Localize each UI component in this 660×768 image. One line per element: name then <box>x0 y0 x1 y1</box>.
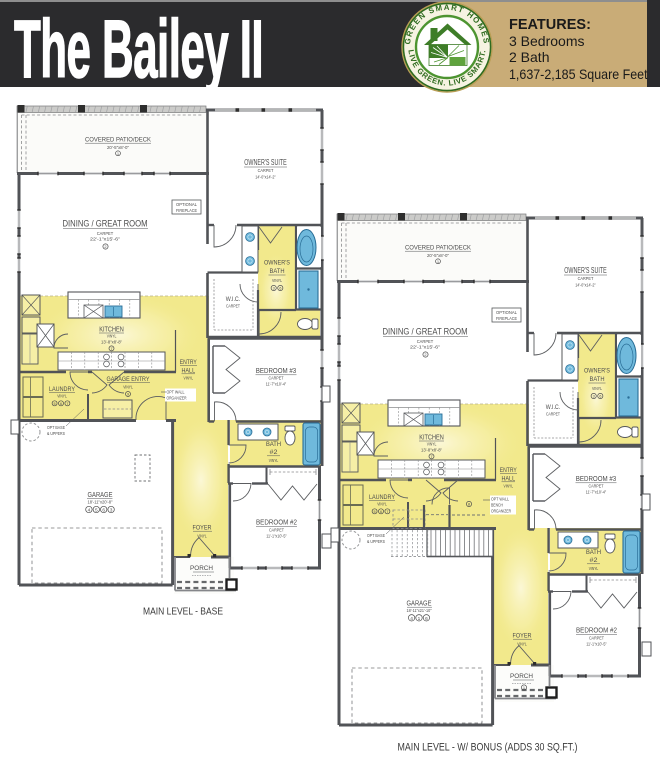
svg-text:7: 7 <box>430 455 432 459</box>
svg-text:OWNER'S: OWNER'S <box>584 368 610 375</box>
svg-text:5: 5 <box>95 508 98 514</box>
svg-text:BATH: BATH <box>590 376 605 383</box>
svg-text:BEDROOM #3: BEDROOM #3 <box>256 366 297 375</box>
svg-text:BEDROOM #2: BEDROOM #2 <box>256 518 297 527</box>
svg-text:1: 1 <box>117 152 119 156</box>
svg-text:6: 6 <box>60 402 62 406</box>
svg-text:CARPET: CARPET <box>417 339 434 344</box>
svg-text:8: 8 <box>468 502 470 507</box>
svg-text:& UPPERS: & UPPERS <box>367 539 385 544</box>
svg-text:PORCH: PORCH <box>510 673 533 680</box>
svg-text:KITCHEN: KITCHEN <box>419 434 444 441</box>
svg-text:BATH: BATH <box>266 442 281 448</box>
svg-text:ORGANIZER: ORGANIZER <box>491 509 511 514</box>
svg-text:6: 6 <box>102 508 105 514</box>
svg-text:CARPET: CARPET <box>269 527 284 532</box>
svg-text:OPTIONAL: OPTIONAL <box>176 202 198 207</box>
svg-text:7: 7 <box>110 347 112 351</box>
svg-text:ENTRY: ENTRY <box>500 467 517 474</box>
svg-text:20'-5"x8'-0": 20'-5"x8'-0" <box>427 253 449 258</box>
svg-text:FOYER: FOYER <box>513 633 532 640</box>
svg-text:GARAGE: GARAGE <box>88 490 113 499</box>
svg-text:VINYL: VINYL <box>197 534 207 539</box>
svg-text:BEDROOM #3: BEDROOM #3 <box>576 474 617 483</box>
svg-text:5: 5 <box>374 510 376 514</box>
svg-text:OPTIONAL: OPTIONAL <box>496 310 518 315</box>
svg-text:OWNER'S SUITE: OWNER'S SUITE <box>244 158 287 167</box>
svg-text:MAIN LEVEL - W/ BONUS (ADDS 30: MAIN LEVEL - W/ BONUS (ADDS 30 SQ.FT.) <box>398 742 578 754</box>
svg-text:BATH: BATH <box>270 268 285 275</box>
svg-text:13'-8"x8'-8": 13'-8"x8'-8" <box>421 448 442 453</box>
svg-text:COVERED PATIO/DECK: COVERED PATIO/DECK <box>405 245 471 252</box>
svg-text:7: 7 <box>66 402 68 406</box>
svg-text:VINYL: VINYL <box>184 376 194 381</box>
svg-text:VINYL: VINYL <box>589 566 599 571</box>
svg-text:VINYL: VINYL <box>517 642 527 647</box>
svg-text:VINYL: VINYL <box>592 386 603 391</box>
svg-text:11'-1"x10'-5": 11'-1"x10'-5" <box>586 641 607 646</box>
svg-text:18'-11"x21'-10": 18'-11"x21'-10" <box>407 608 432 613</box>
svg-text:OWNER'S SUITE: OWNER'S SUITE <box>564 266 607 275</box>
svg-text:2: 2 <box>104 244 106 249</box>
svg-text:6: 6 <box>279 286 281 291</box>
svg-text:VINYL: VINYL <box>57 394 67 399</box>
svg-text:9: 9 <box>127 393 129 397</box>
svg-text:11'-7"x10'-4": 11'-7"x10'-4" <box>586 489 607 494</box>
svg-text:CARPET: CARPET <box>546 412 560 417</box>
svg-text:HALL: HALL <box>181 367 195 374</box>
svg-text:ENTRY: ENTRY <box>180 359 197 366</box>
svg-text:CARPET: CARPET <box>258 168 274 173</box>
svg-text:14'-0"x14'-2": 14'-0"x14'-2" <box>575 283 596 288</box>
svg-text:GARAGE ENTRY: GARAGE ENTRY <box>107 376 151 383</box>
svg-text:4: 4 <box>410 616 413 622</box>
svg-text:1: 1 <box>523 685 525 690</box>
svg-text:22'-1"x15'-6": 22'-1"x15'-6" <box>410 345 440 350</box>
svg-text:ORGANIZER: ORGANIZER <box>167 395 187 400</box>
svg-text:CARPET: CARPET <box>269 375 284 380</box>
svg-text:CARPET: CARPET <box>226 304 240 309</box>
svg-text:#2: #2 <box>270 450 279 456</box>
svg-text:22'-1"x15'-6": 22'-1"x15'-6" <box>90 237 120 242</box>
svg-text:OPT BASE: OPT BASE <box>47 425 65 430</box>
svg-text:CARPET: CARPET <box>589 483 604 488</box>
svg-text:HALL: HALL <box>501 475 515 482</box>
svg-text:VINYL: VINYL <box>269 458 279 463</box>
svg-text:5: 5 <box>54 402 56 406</box>
svg-text:11'-7"x10'-4": 11'-7"x10'-4" <box>266 381 287 386</box>
svg-text:2: 2 <box>424 352 426 357</box>
svg-text:VINYL: VINYL <box>123 384 133 389</box>
svg-text:VINYL: VINYL <box>504 484 514 489</box>
svg-text:20'-5"x8'-0": 20'-5"x8'-0" <box>107 145 129 150</box>
svg-text:18'-11"x20'-8": 18'-11"x20'-8" <box>88 500 113 505</box>
svg-text:MAIN LEVEL - BASE: MAIN LEVEL - BASE <box>143 607 223 618</box>
svg-text:& UPPERS: & UPPERS <box>47 431 65 436</box>
svg-text:DINING / GREAT ROOM: DINING / GREAT ROOM <box>63 219 148 229</box>
svg-text:13'-8"x8'-8": 13'-8"x8'-8" <box>101 340 122 345</box>
svg-text:LAUNDRY: LAUNDRY <box>49 386 75 393</box>
svg-text:6: 6 <box>380 510 382 514</box>
svg-text:1: 1 <box>437 260 439 264</box>
svg-text:1: 1 <box>418 616 421 622</box>
svg-text:VINYL: VINYL <box>107 334 117 339</box>
svg-text:OPT WALL: OPT WALL <box>167 389 186 394</box>
svg-text:GARAGE: GARAGE <box>407 599 432 608</box>
svg-text:PORCH: PORCH <box>190 565 213 572</box>
svg-text:BENCH: BENCH <box>491 503 503 508</box>
svg-text:W.I.C.: W.I.C. <box>226 297 241 303</box>
svg-text:VINYL: VINYL <box>272 278 283 283</box>
svg-text:CARPET: CARPET <box>578 276 594 281</box>
svg-text:OWNER'S: OWNER'S <box>264 260 290 267</box>
svg-text:3: 3 <box>593 394 595 399</box>
svg-text:6: 6 <box>599 394 601 399</box>
svg-text:OPT BASE: OPT BASE <box>367 533 385 538</box>
svg-text:CARPET: CARPET <box>97 231 114 236</box>
svg-text:FIREPLACE: FIREPLACE <box>176 208 197 213</box>
svg-text:DINING / GREAT ROOM: DINING / GREAT ROOM <box>383 327 468 337</box>
svg-text:COVERED PATIO/DECK: COVERED PATIO/DECK <box>85 137 151 144</box>
svg-text:14'-0"x14'-2": 14'-0"x14'-2" <box>255 175 276 180</box>
svg-text:6: 6 <box>425 616 428 622</box>
svg-text:BEDROOM #2: BEDROOM #2 <box>576 626 617 635</box>
svg-text:7: 7 <box>386 510 388 514</box>
svg-text:#2: #2 <box>590 558 599 564</box>
svg-text:KITCHEN: KITCHEN <box>99 326 124 333</box>
svg-text:4: 4 <box>88 508 91 514</box>
svg-text:OPT WALL: OPT WALL <box>491 497 510 502</box>
svg-text:FIREPLACE: FIREPLACE <box>496 316 517 321</box>
svg-text:LAUNDRY: LAUNDRY <box>369 494 395 501</box>
svg-text:VINYL: VINYL <box>427 442 437 447</box>
svg-text:BATH: BATH <box>586 550 601 556</box>
svg-text:FOYER: FOYER <box>193 525 212 532</box>
svg-text:VINYL: VINYL <box>377 502 387 507</box>
svg-text:3: 3 <box>273 286 275 291</box>
svg-text:CARPET: CARPET <box>589 635 604 640</box>
svg-text:3: 3 <box>110 508 113 514</box>
svg-text:W.I.C.: W.I.C. <box>546 405 561 411</box>
svg-text:11'-1"x10'-5": 11'-1"x10'-5" <box>266 533 287 538</box>
